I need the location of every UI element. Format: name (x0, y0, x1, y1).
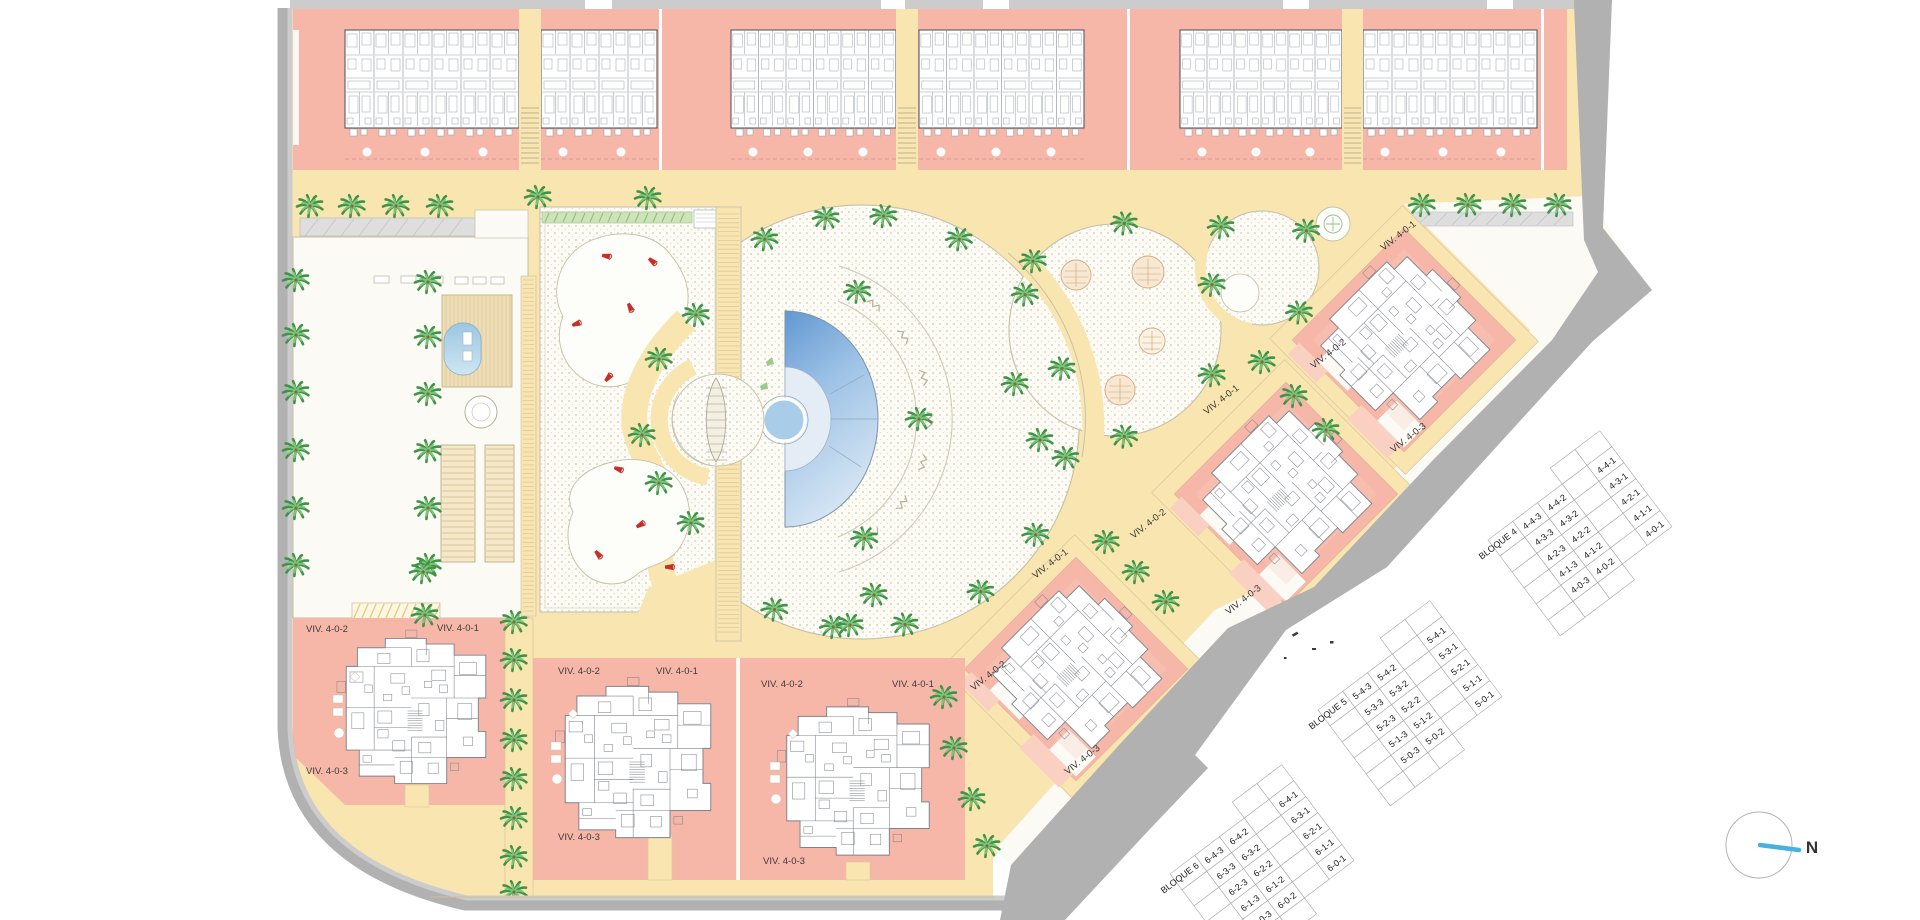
svg-text:VIV. 4-0-2: VIV. 4-0-2 (558, 666, 600, 677)
svg-text:VIV. 4-0-1: VIV. 4-0-1 (892, 679, 934, 690)
svg-text:VIV. 4-0-2: VIV. 4-0-2 (761, 679, 803, 690)
svg-text:VIV. 4-0-3: VIV. 4-0-3 (306, 766, 348, 777)
svg-text:VIV. 4-0-2: VIV. 4-0-2 (306, 624, 348, 635)
svg-text:N: N (1806, 838, 1818, 857)
svg-text:VIV. 4-0-1: VIV. 4-0-1 (437, 623, 479, 634)
svg-text:VIV. 4-0-1: VIV. 4-0-1 (656, 666, 698, 677)
svg-text:VIV. 4-0-3: VIV. 4-0-3 (558, 832, 600, 843)
svg-text:VIV. 4-0-3: VIV. 4-0-3 (763, 856, 805, 867)
